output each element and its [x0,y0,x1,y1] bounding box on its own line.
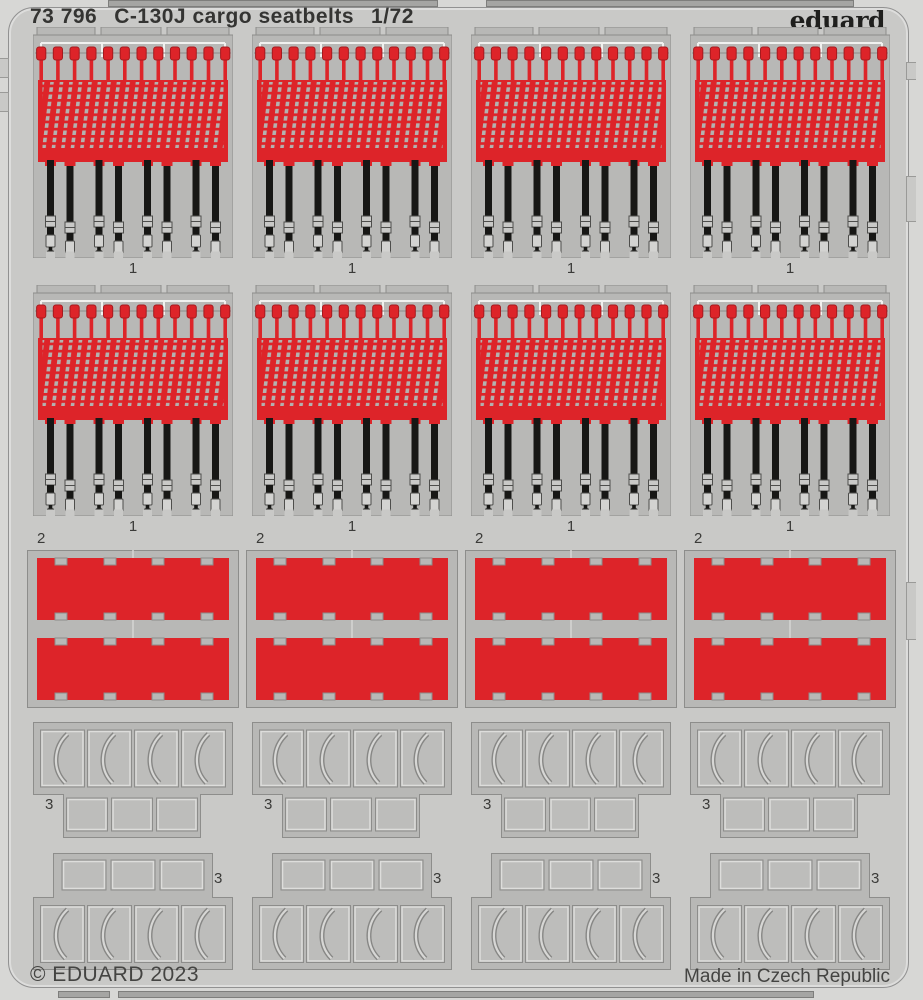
red-panel-part [684,550,896,708]
part-number-label: 3 [264,796,272,813]
seatbelt-panel-part [33,285,233,516]
product-title: C-130J cargo seatbelts [114,5,354,28]
seatbelt-panel-part [690,285,890,516]
part-number-label: 2 [256,530,264,547]
frame-section-part [690,722,890,840]
red-panel-part [27,550,239,708]
part-number-label: 1 [252,518,452,535]
frame-bar-bottom-left [58,991,110,998]
part-number-label: 1 [33,518,233,535]
edge-tab [906,176,916,222]
frame-section-part [471,853,671,971]
seatbelt-panel-part [471,27,671,258]
part-number-label: 2 [37,530,45,547]
frame-section-part [252,853,452,971]
part-number-label: 1 [690,260,890,277]
sheet-title: 73 796C-130J cargo seatbelts1/72 [30,5,414,29]
part-number-label: 3 [871,870,879,887]
part-number-label: 3 [652,870,660,887]
edge-tab [0,92,9,112]
frame-section-part [33,853,233,971]
photoetch-sheet-scan: { "header": { "catalog_number": "73 796"… [0,0,923,1000]
part-number-label: 3 [214,870,222,887]
part-number-label: 1 [471,518,671,535]
part-number-label: 3 [702,796,710,813]
part-number-label: 1 [33,260,233,277]
part-number-label: 2 [694,530,702,547]
frame-section-part [690,853,890,971]
catalog-number: 73 796 [30,5,97,28]
part-number-label: 2 [475,530,483,547]
red-panel-part [246,550,458,708]
frame-section-part [471,722,671,840]
seatbelt-panel-part [33,27,233,258]
frame-section-part [252,722,452,840]
part-number-label: 1 [690,518,890,535]
red-panel-part [465,550,677,708]
part-number-label: 3 [483,796,491,813]
part-number-label: 1 [252,260,452,277]
part-number-label: 1 [471,260,671,277]
copyright-text: © EDUARD 2023 [30,963,199,987]
seatbelt-panel-part [252,285,452,516]
part-number-label: 3 [433,870,441,887]
edge-tab [906,62,916,80]
edge-tab [906,582,916,640]
seatbelt-panel-part [471,285,671,516]
part-number-label: 3 [45,796,53,813]
seatbelt-panel-part [690,27,890,258]
frame-bar-bottom-right [118,991,814,998]
frame-section-part [33,722,233,840]
made-in-text: Made in Czech Republic [684,966,890,988]
scale-label: 1/72 [371,5,414,28]
edge-tab [0,58,9,78]
seatbelt-panel-part [252,27,452,258]
